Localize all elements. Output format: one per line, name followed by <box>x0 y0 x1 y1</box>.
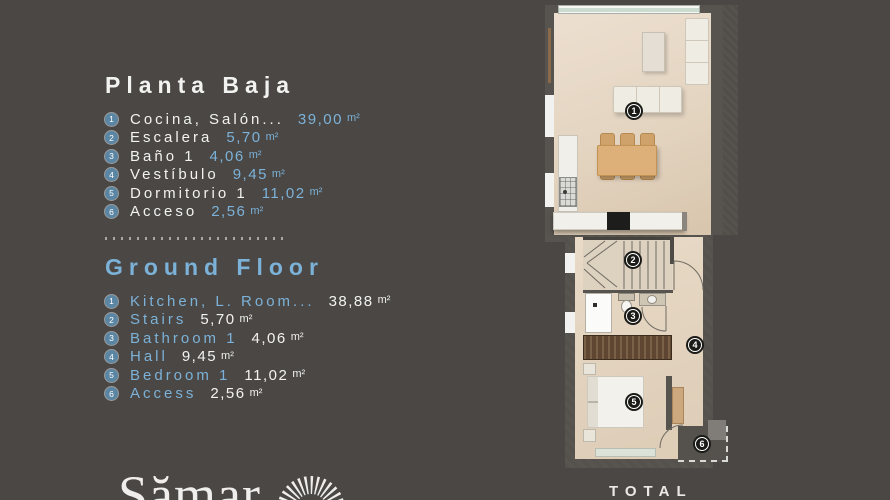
brand-logo: Sămar <box>118 468 347 500</box>
room-number-badge: 1 <box>105 113 118 126</box>
shower <box>585 293 612 333</box>
room-number-badge: 3 <box>105 332 118 345</box>
room-row: 5 Dormitorio 1 11,02 m² <box>105 184 525 203</box>
floor-plan: 1 2 3 4 5 6 <box>545 0 745 500</box>
room-area-unit: m² <box>291 331 304 345</box>
wood-panel <box>548 28 551 83</box>
room-row: 1 Cocina, Salón... 39,00 m² <box>105 110 525 129</box>
room-row: 2 Stairs 5,70 m² <box>105 311 525 330</box>
room-label: Access <box>130 385 196 402</box>
room-number-badge: 2 <box>105 313 118 326</box>
planta-baja-title: Planta Baja <box>105 72 525 99</box>
room-row: 6 Acceso 2,56 m² <box>105 203 525 222</box>
plan-badge-access: 6 <box>693 435 711 453</box>
room-number-badge: 5 <box>105 187 118 200</box>
window-top <box>558 5 700 14</box>
plan-badge-living: 1 <box>625 102 643 120</box>
sunburst-icon <box>275 470 347 500</box>
bedroom-door <box>672 387 684 424</box>
room-number-badge: 6 <box>105 205 118 218</box>
planta-baja-list: 1 Cocina, Salón... 39,00 m² 2 Escalera 5… <box>105 110 525 221</box>
plan-badge-hall: 4 <box>686 336 704 354</box>
room-area-unit: m² <box>310 186 323 200</box>
room-area-unit: m² <box>240 313 253 327</box>
room-area-value: 9,45 <box>233 166 268 183</box>
room-label: Escalera <box>130 129 212 146</box>
room-row: 3 Bathroom 1 4,06 m² <box>105 329 525 348</box>
room-area-value: 5,70 <box>200 311 235 328</box>
ground-floor-title: Ground Floor <box>105 254 525 281</box>
sofa-horizontal <box>613 86 682 113</box>
room-area-value: 39,00 <box>298 111 343 128</box>
room-area-unit: m² <box>378 294 391 308</box>
room-row: 2 Escalera 5,70 m² <box>105 129 525 148</box>
bathroom-basin <box>647 295 657 304</box>
room-area-unit: m² <box>221 350 234 364</box>
window-left-2 <box>545 173 554 207</box>
tv-cabinet <box>642 32 665 72</box>
room-number-badge: 1 <box>105 295 118 308</box>
room-area-unit: m² <box>250 205 263 219</box>
floorplan-poster: Planta Baja 1 Cocina, Salón... 39,00 m² … <box>0 0 890 500</box>
room-number-badge: 5 <box>105 369 118 382</box>
room-area-value: 5,70 <box>226 129 261 146</box>
divider-dots <box>105 237 283 240</box>
room-row: 6 Access 2,56 m² <box>105 385 525 404</box>
wardrobe <box>583 335 672 360</box>
room-label: Vestíbulo <box>130 166 219 183</box>
ground-floor-list: 1 Kitchen, L. Room... 38,88 m² 2 Stairs … <box>105 292 525 403</box>
room-area-value: 2,56 <box>211 203 246 220</box>
room-area-value: 11,02 <box>244 367 288 384</box>
stair-wall <box>670 237 674 264</box>
room-area-value: 11,02 <box>262 185 306 202</box>
brand-name: Sămar <box>118 468 261 500</box>
sofa-vertical <box>685 18 709 85</box>
room-label: Dormitorio 1 <box>130 185 248 202</box>
room-number-badge: 4 <box>105 168 118 181</box>
bed-bench <box>595 448 656 457</box>
nightstand <box>583 429 596 442</box>
room-row: 3 Baño 1 4,06 m² <box>105 147 525 166</box>
plan-badge-bathroom: 3 <box>624 307 642 325</box>
room-area-value: 4,06 <box>252 330 287 347</box>
window-left-1 <box>545 95 554 137</box>
room-area-unit: m² <box>249 149 262 163</box>
room-area-value: 2,56 <box>210 385 245 402</box>
total-label: TOTAL <box>609 483 693 500</box>
room-row: 4 Vestíbulo 9,45 m² <box>105 166 525 185</box>
room-label: Cocina, Salón... <box>130 111 284 128</box>
room-legend: Planta Baja 1 Cocina, Salón... 39,00 m² … <box>105 72 525 403</box>
room-label: Hall <box>130 348 168 365</box>
dining-table <box>597 145 657 176</box>
room-row: 5 Bedroom 1 11,02 m² <box>105 366 525 385</box>
room-label: Baño 1 <box>130 148 196 165</box>
room-number-badge: 3 <box>105 150 118 163</box>
room-area-unit: m² <box>266 131 279 145</box>
room-label: Kitchen, L. Room... <box>130 293 315 310</box>
counter-shadow <box>682 212 687 231</box>
cooktop <box>607 212 630 230</box>
room-label: Bathroom 1 <box>130 330 238 347</box>
room-area-value: 4,06 <box>210 148 245 165</box>
room-number-badge: 4 <box>105 350 118 363</box>
bed-pillows <box>588 377 598 427</box>
room-area-unit: m² <box>250 387 263 401</box>
room-area-unit: m² <box>347 112 360 126</box>
plan-badge-stairs: 2 <box>624 251 642 269</box>
section-planta-baja: Planta Baja 1 Cocina, Salón... 39,00 m² … <box>105 72 525 221</box>
room-area-unit: m² <box>272 168 285 182</box>
room-row: 4 Hall 9,45 m² <box>105 348 525 367</box>
room-row: 1 Kitchen, L. Room... 38,88 m² <box>105 292 525 311</box>
room-label: Acceso <box>130 203 197 220</box>
window-left-4 <box>565 312 575 333</box>
room-area-value: 9,45 <box>182 348 217 365</box>
nightstand <box>583 363 596 375</box>
room-area-unit: m² <box>292 368 305 382</box>
access-step <box>708 420 726 440</box>
kitchen-sink <box>559 177 577 207</box>
room-label: Bedroom 1 <box>130 367 230 384</box>
room-label: Stairs <box>130 311 186 328</box>
window-left-3 <box>565 253 575 273</box>
room-number-badge: 2 <box>105 131 118 144</box>
section-ground-floor: Ground Floor 1 Kitchen, L. Room... 38,88… <box>105 254 525 403</box>
room-area-value: 38,88 <box>329 293 374 310</box>
room-number-badge: 6 <box>105 387 118 400</box>
plan-badge-bedroom: 5 <box>625 393 643 411</box>
